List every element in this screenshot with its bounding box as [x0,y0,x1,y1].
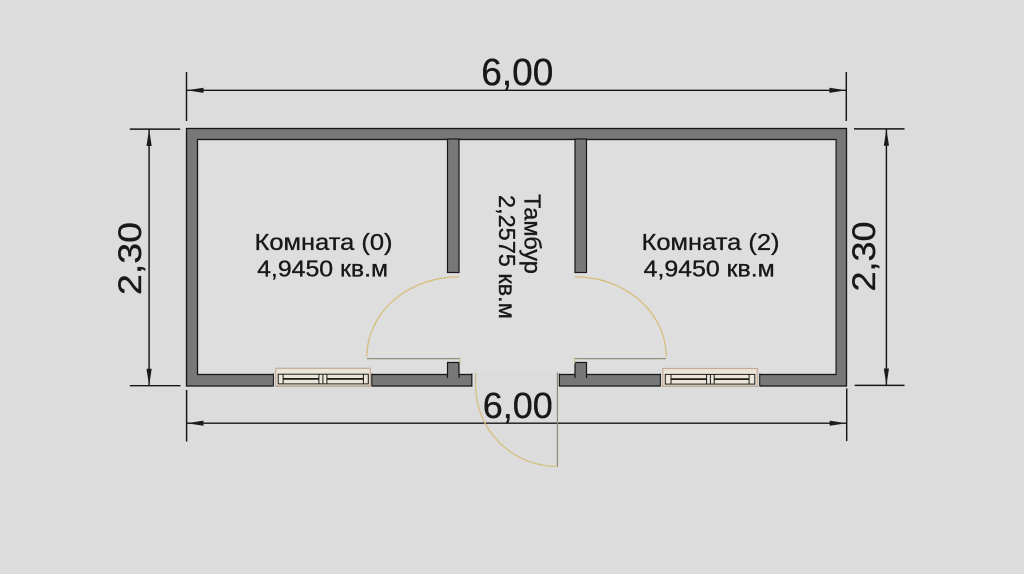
svg-text:6,00: 6,00 [481,52,553,94]
svg-text:4,9450 кв.м: 4,9450 кв.м [257,256,388,282]
svg-text:6,00: 6,00 [483,385,553,426]
svg-text:Комната (0): Комната (0) [255,229,393,255]
svg-text:Тамбур: Тамбур [520,194,546,274]
svg-text:2,2575 кв.м: 2,2575 кв.м [494,195,520,319]
svg-text:2,30: 2,30 [846,222,882,292]
svg-text:2,30: 2,30 [112,222,148,295]
svg-text:4,9450 кв.м: 4,9450 кв.м [644,256,775,282]
svg-text:Комната (2): Комната (2) [642,229,780,255]
